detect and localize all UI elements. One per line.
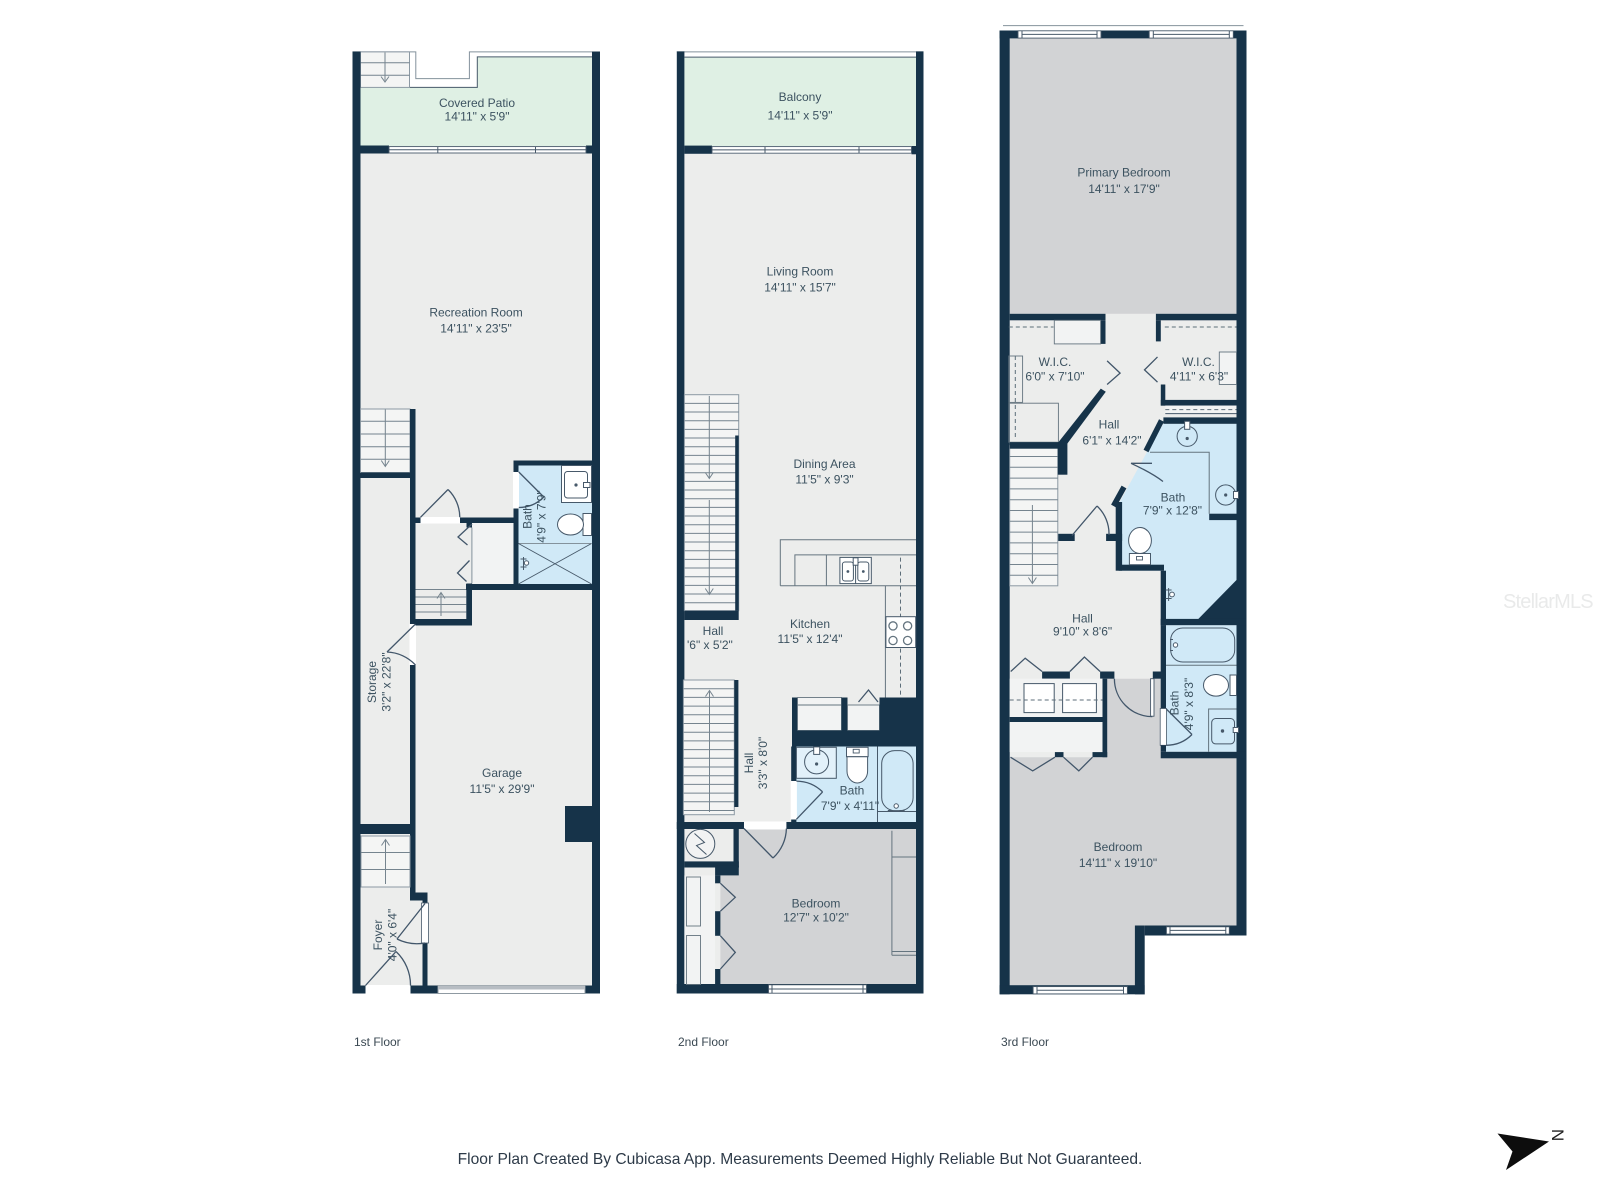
svg-text:Bath: Bath	[840, 784, 865, 798]
svg-text:14'11" x 23'5": 14'11" x 23'5"	[440, 322, 512, 336]
svg-text:14'11" x 15'7": 14'11" x 15'7"	[764, 280, 836, 294]
svg-text:1st Floor: 1st Floor	[354, 1035, 401, 1049]
svg-text:7'9" x 4'11": 7'9" x 4'11"	[821, 799, 879, 813]
svg-text:14'11" x 5'9": 14'11" x 5'9"	[445, 110, 510, 124]
svg-text:9'10" x 8'6": 9'10" x 8'6"	[1053, 625, 1112, 639]
svg-text:6'1" x 14'2": 6'1" x 14'2"	[1082, 433, 1141, 447]
svg-text:N: N	[1548, 1129, 1567, 1141]
svg-text:Bedroom: Bedroom	[792, 896, 841, 910]
svg-text:Primary Bedroom: Primary Bedroom	[1077, 166, 1170, 180]
svg-text:Hall: Hall	[742, 753, 756, 774]
svg-text:Recreation Room: Recreation Room	[429, 306, 522, 320]
svg-text:Dining Area: Dining Area	[793, 457, 855, 471]
svg-text:Kitchen: Kitchen	[790, 617, 830, 631]
svg-text:W.I.C.: W.I.C.	[1182, 355, 1215, 369]
svg-text:11'5" x 29'9": 11'5" x 29'9"	[470, 782, 535, 796]
svg-text:3'3" x 8'0": 3'3" x 8'0"	[756, 737, 770, 789]
svg-text:Hall: Hall	[1099, 417, 1120, 431]
svg-text:4'9" x 7'9": 4'9" x 7'9"	[534, 490, 548, 542]
svg-text:Garage: Garage	[482, 766, 522, 780]
svg-text:Bath: Bath	[520, 504, 534, 529]
svg-text:11'5" x 12'4": 11'5" x 12'4"	[778, 632, 843, 646]
svg-text:4'9" x 8'3": 4'9" x 8'3"	[1182, 678, 1196, 730]
svg-text:7'9" x 12'8": 7'9" x 12'8"	[1143, 504, 1202, 518]
svg-text:Covered Patio: Covered Patio	[439, 96, 515, 110]
svg-text:'6" x 5'2": '6" x 5'2"	[687, 638, 733, 652]
svg-text:14'11" x 17'9": 14'11" x 17'9"	[1088, 182, 1160, 196]
svg-text:14'11" x 19'10": 14'11" x 19'10"	[1079, 856, 1157, 870]
svg-text:6'0" x 7'10": 6'0" x 7'10"	[1025, 370, 1084, 384]
svg-text:Hall: Hall	[1072, 611, 1093, 625]
svg-text:14'11" x 5'9": 14'11" x 5'9"	[768, 108, 833, 122]
svg-text:Bath: Bath	[1161, 490, 1186, 504]
svg-text:4'11" x 6'3": 4'11" x 6'3"	[1170, 370, 1228, 384]
svg-text:Floor Plan Created By Cubicasa: Floor Plan Created By Cubicasa App. Meas…	[458, 1151, 1143, 1168]
svg-text:11'5" x 9'3": 11'5" x 9'3"	[795, 472, 853, 486]
svg-text:Hall: Hall	[703, 624, 724, 638]
svg-text:2nd Floor: 2nd Floor	[678, 1035, 729, 1049]
svg-text:W.I.C.: W.I.C.	[1039, 355, 1072, 369]
svg-text:StellarMLS: StellarMLS	[1503, 591, 1593, 613]
svg-text:Balcony: Balcony	[779, 90, 822, 104]
svg-text:Bath: Bath	[1168, 691, 1182, 716]
svg-text:3rd Floor: 3rd Floor	[1001, 1035, 1049, 1049]
svg-text:Storage: Storage	[365, 661, 379, 703]
svg-text:Bedroom: Bedroom	[1094, 840, 1143, 854]
svg-text:3'2" x 22'8": 3'2" x 22'8"	[380, 652, 394, 711]
svg-text:12'7" x 10'2": 12'7" x 10'2"	[783, 911, 849, 925]
svg-text:Living Room: Living Room	[767, 265, 834, 279]
svg-text:Foyer: Foyer	[371, 920, 385, 951]
